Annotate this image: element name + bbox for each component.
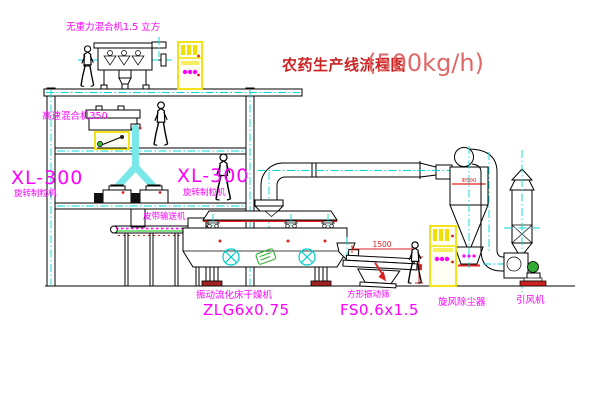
- label-gravity-mixer: 无重力混合机1.5 立方: [66, 21, 160, 33]
- gravity-free-mixer: [78, 37, 172, 89]
- page-title-capacity: (500kg/h): [367, 49, 484, 77]
- label-high-speed-mixer: 高速混合机350: [42, 110, 108, 122]
- label-dryer-model: ZLG6x0.75: [203, 301, 290, 319]
- label-screen-name: 方形振动筛: [347, 289, 390, 300]
- cad-canvas: 1500 Φ500: [0, 0, 600, 403]
- control-cabinet-ground: [430, 226, 456, 286]
- label-granulator-left-name: 旋转制粒机: [14, 188, 57, 199]
- label-belt-conveyor: 皮带输送机: [143, 211, 186, 222]
- vibrating-screen: 1500: [342, 240, 423, 289]
- flow-diagram: 1500 Φ500: [0, 0, 600, 403]
- label-screen-model: FS0.6x1.5: [340, 301, 419, 319]
- label-dryer-name: 振动流化床干燥机: [196, 289, 273, 301]
- control-cabinet-top: [178, 42, 202, 89]
- label-fan: 引风机: [516, 294, 545, 306]
- label-granulator-left-model: XL-300: [11, 167, 83, 189]
- label-cyclone: 旋风除尘器: [438, 296, 486, 308]
- granulator-right: [131, 186, 168, 203]
- label-granulator-right-name: 旋转制粒机: [183, 187, 226, 198]
- dim-screen-width: 1500: [372, 240, 391, 249]
- induced-draft-fan: [504, 253, 546, 286]
- worker-figure-2: [154, 102, 168, 145]
- granulator-left: [94, 186, 131, 203]
- label-granulator-right-model: XL-300: [177, 165, 249, 187]
